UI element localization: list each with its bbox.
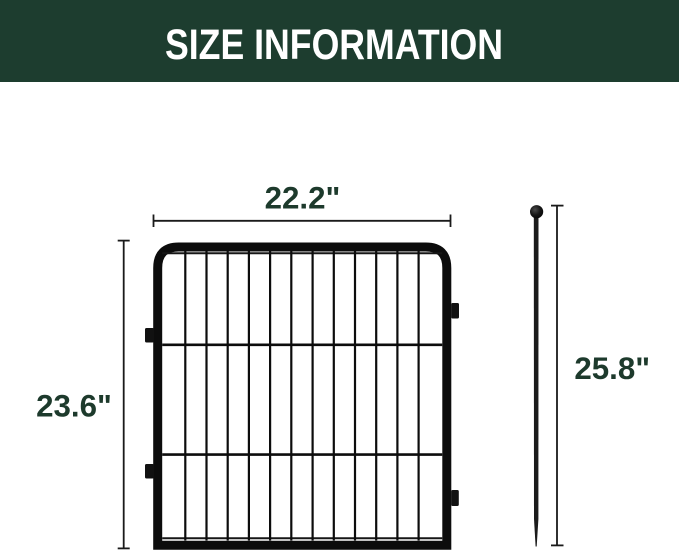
svg-text:SIZE INFORMATION: SIZE INFORMATION [165, 22, 503, 69]
svg-text:22.2": 22.2" [265, 181, 341, 216]
svg-text:25.8": 25.8" [574, 351, 650, 386]
svg-text:23.6": 23.6" [36, 389, 112, 424]
